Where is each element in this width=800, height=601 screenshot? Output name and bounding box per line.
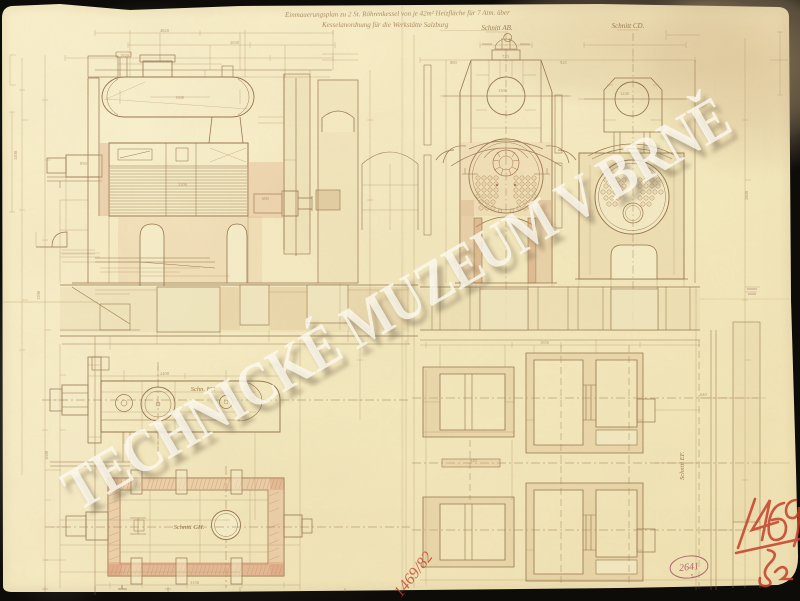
svg-text:1500: 1500	[175, 95, 185, 100]
svg-text:3150: 3150	[190, 580, 200, 585]
svg-text:Schnitt CD.: Schnitt CD.	[612, 22, 645, 30]
svg-text:5200: 5200	[178, 182, 188, 187]
svg-text:4820: 4820	[160, 28, 170, 33]
svg-text:1240: 1240	[620, 91, 630, 96]
svg-text:600: 600	[262, 196, 270, 201]
svg-text:1600: 1600	[44, 450, 49, 460]
svg-text:1850: 1850	[540, 340, 550, 345]
svg-text:2630: 2630	[230, 40, 240, 45]
svg-text:Kesselanordnung für die Werkst: Kesselanordnung für die Werkstätte Salzb…	[321, 21, 449, 29]
svg-text:1200: 1200	[36, 290, 41, 300]
svg-text:925: 925	[560, 60, 568, 65]
svg-text:1300: 1300	[498, 88, 508, 93]
svg-text:1920: 1920	[120, 53, 130, 58]
svg-text:3400: 3400	[13, 150, 18, 160]
svg-text:720: 720	[502, 54, 510, 59]
svg-text:920: 920	[470, 458, 478, 463]
svg-text:880: 880	[450, 60, 458, 65]
svg-text:640: 640	[700, 392, 708, 397]
svg-text:850: 850	[80, 161, 88, 166]
svg-text:Schnitt AB.: Schnitt AB.	[481, 24, 513, 32]
svg-text:Schnitt GH.: Schnitt GH.	[174, 524, 205, 531]
svg-text:2400: 2400	[160, 371, 170, 376]
svg-text:Schnitt EF.: Schnitt EF.	[679, 451, 686, 480]
svg-text:2800: 2800	[744, 190, 749, 200]
svg-text:5: 5	[691, 574, 694, 580]
svg-text:2641: 2641	[679, 561, 700, 574]
